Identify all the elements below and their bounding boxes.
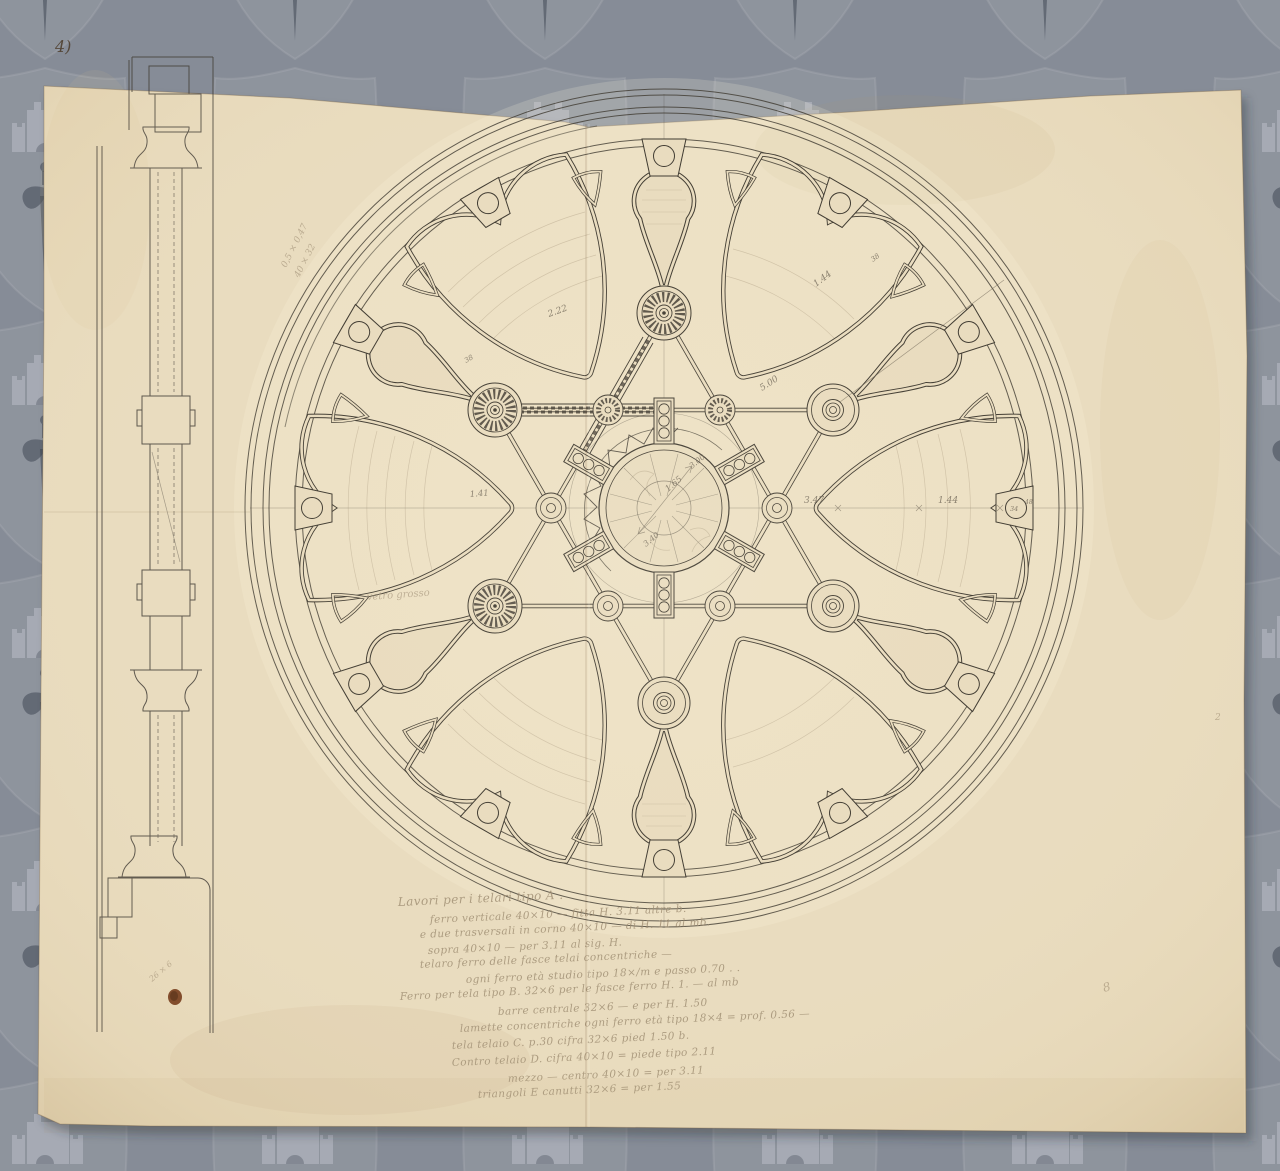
aging-vignette	[38, 86, 1247, 1133]
scanned-drawing-page: 4) 0,5 × 0,47 40 × 32 2.22 1.44 38 5.00 …	[0, 0, 1280, 1171]
corner-mark: 4)	[54, 37, 71, 56]
drawing-canvas: 4) 0,5 × 0,47 40 × 32 2.22 1.44 38 5.00 …	[0, 0, 1280, 1171]
